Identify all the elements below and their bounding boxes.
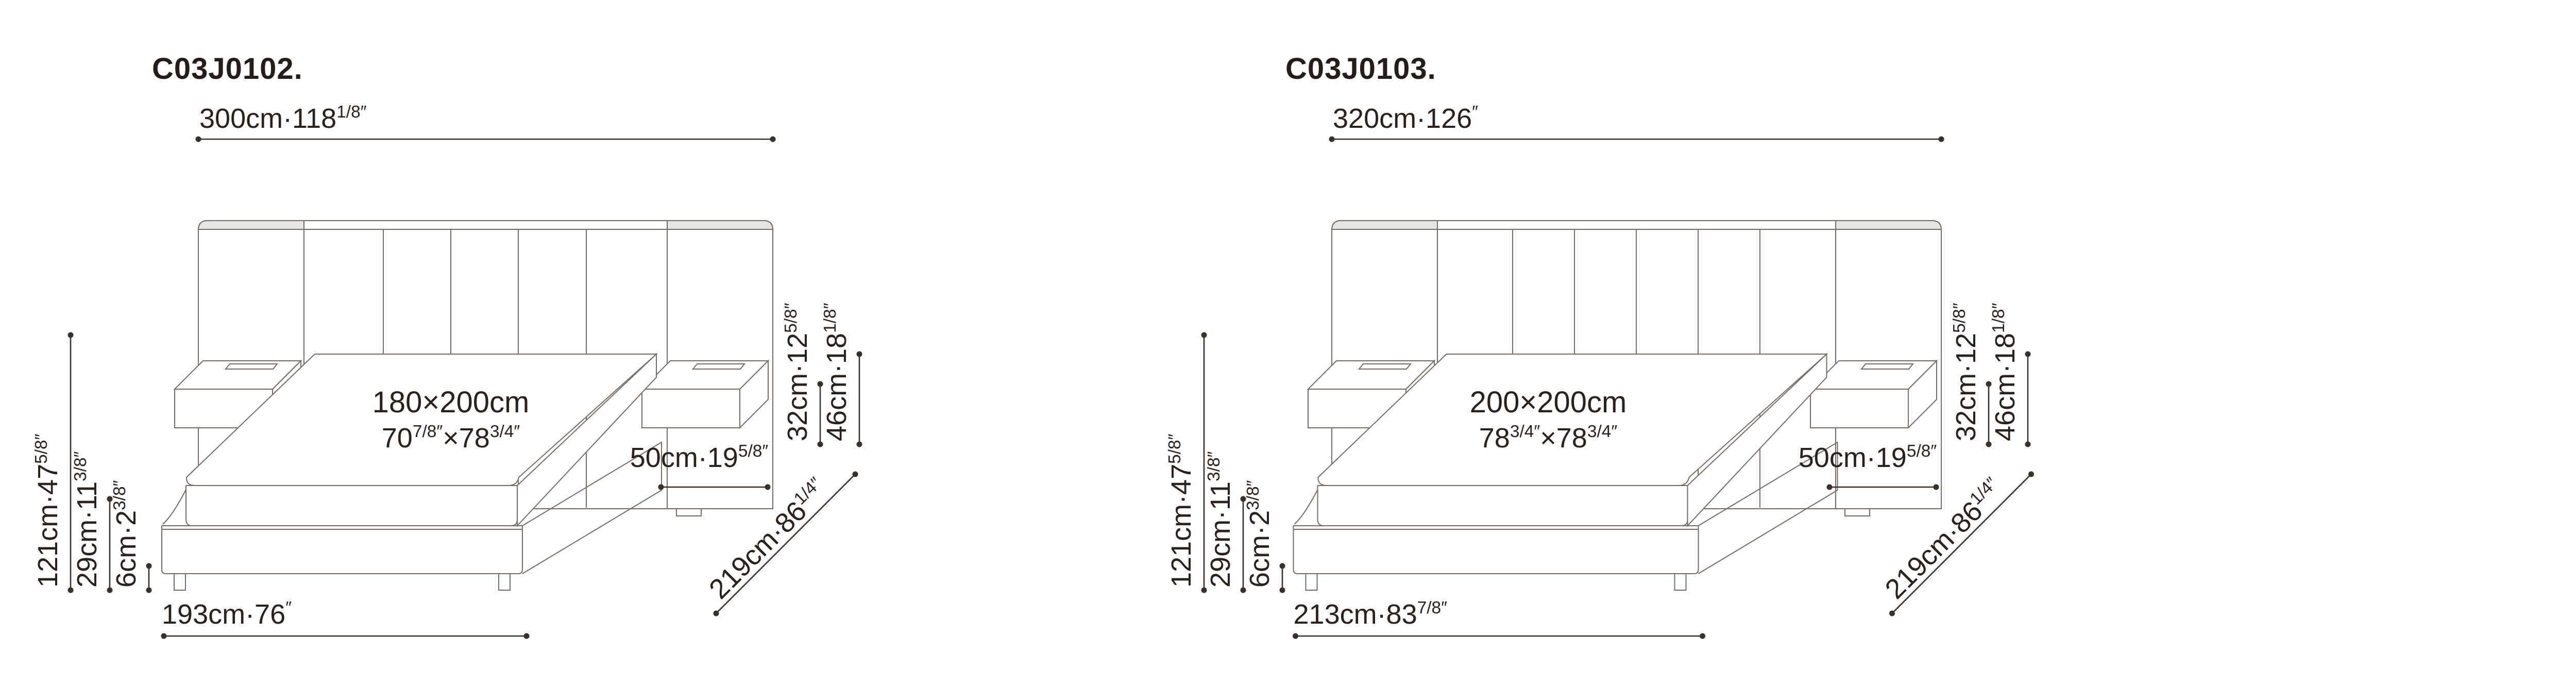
right-wing-cap xyxy=(1836,221,1941,230)
right-wing-cap xyxy=(667,221,773,230)
mattress-corner-curve xyxy=(163,490,186,524)
dim-top-label: 320cm·126″ xyxy=(1333,103,1478,134)
mattress-front xyxy=(1318,486,1688,526)
base-rear-tab xyxy=(676,509,701,516)
dim-shelf-height-line xyxy=(2025,352,2031,447)
dim-shelf-height-label: 46cm·181/8″ xyxy=(821,303,852,441)
mattress-size-cm: 180×200cm xyxy=(372,386,530,419)
bed-diagram-2: 200×200cm783/4″×783/4″320cm·126″213cm·83… xyxy=(1165,103,2034,639)
left-leg xyxy=(1306,574,1317,590)
dim-bottom-line xyxy=(161,633,530,639)
dim-bottom-line xyxy=(1293,633,1705,639)
right-nightstand xyxy=(642,361,768,428)
bed-diagrams-canvas: 180×200cm707/8″×783/4″300cm·1181/8″193cm… xyxy=(0,0,2576,685)
mattress-size-cm: 200×200cm xyxy=(1470,386,1627,419)
left-leg xyxy=(174,574,185,590)
dim-leg-height-line xyxy=(1280,563,1285,593)
dim-shelf-height-line xyxy=(857,352,862,447)
dim-top-label: 300cm·1181/8″ xyxy=(199,103,367,134)
dim-leg-height-label: 6cm·23/8″ xyxy=(1244,480,1275,588)
base-rear-tab xyxy=(1845,509,1870,516)
base-front xyxy=(162,526,522,574)
base-front xyxy=(1294,526,1699,574)
dim-nightstand-height-label: 32cm·125/8″ xyxy=(782,303,813,441)
dim-top-line xyxy=(196,137,776,142)
furniture-dimension-sheet: { "page": { "background": "#ffffff", "in… xyxy=(0,0,2576,685)
dim-leg-height-label: 6cm·23/8″ xyxy=(110,480,142,588)
mattress-corner-curve xyxy=(1295,490,1318,524)
dim-leg-height-line xyxy=(146,563,152,593)
right-nightstand xyxy=(1810,361,1937,428)
dim-bottom-label: 213cm·837/8″ xyxy=(1294,598,1448,630)
right-leg xyxy=(499,574,510,590)
mattress-front xyxy=(186,486,517,526)
dim-total-height-label: 121cm·475/8″ xyxy=(32,433,63,588)
dim-base-height-label: 29cm·113/8″ xyxy=(1205,451,1236,588)
dim-shelf-height-label: 46cm·181/8″ xyxy=(1989,303,2021,441)
dim-top-line xyxy=(1329,137,1944,142)
dim-total-height-label: 121cm·475/8″ xyxy=(1165,433,1197,588)
bed-diagram-1: 180×200cm707/8″×783/4″300cm·1181/8″193cm… xyxy=(32,103,862,639)
dim-nightstand-height-label: 32cm·125/8″ xyxy=(1950,303,1981,441)
left-wing-cap xyxy=(1332,221,1437,230)
dim-base-height-label: 29cm·113/8″ xyxy=(71,451,103,588)
dim-bottom-label: 193cm·76″ xyxy=(162,598,292,630)
left-wing-cap xyxy=(198,221,304,230)
nightstand-drawer xyxy=(642,389,740,428)
nightstand-drawer xyxy=(1810,389,1908,428)
right-leg xyxy=(1675,574,1686,590)
